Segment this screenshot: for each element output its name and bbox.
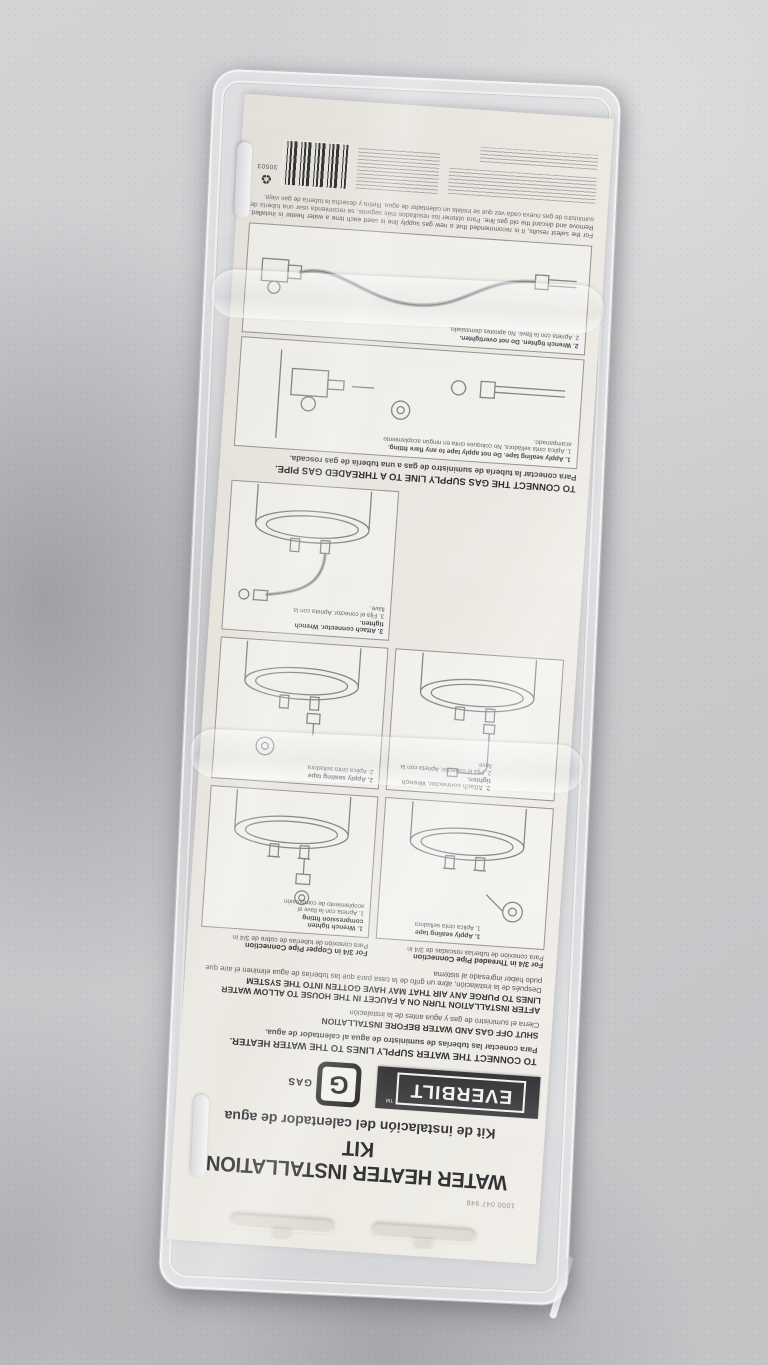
panel-gas-step1: 1. Apply sealing tape. Do not apply tape… bbox=[234, 336, 585, 469]
gas-badge-letter: G bbox=[315, 1061, 362, 1108]
panel-copper-step3: 3. Attach connector. Wrench tighten. 3. … bbox=[221, 480, 399, 641]
panel-copper-step2: 2. Apply sealing tape 2. Aplica cinta se… bbox=[211, 636, 389, 789]
distributor-address-lines bbox=[355, 147, 440, 195]
gas-badge-label: GAS bbox=[287, 1075, 312, 1088]
trademark-symbol: TM bbox=[386, 1097, 394, 1103]
everbilt-logo-bar: EVERBILT TM bbox=[375, 1066, 540, 1119]
insert-card: 1000 047 948 WATER HEATER INSTALLATION K… bbox=[167, 94, 614, 1265]
panel-threaded-step1: 1. Apply sealing tape 1. Aplica cinta se… bbox=[376, 797, 554, 950]
panel-threaded-step2: 2. Attach connector. Wrench tighten. 2. … bbox=[386, 648, 564, 801]
barcode-group: ♻ 30503 bbox=[252, 139, 348, 191]
panel-gas-step2: 2. Wrench tighten. Do not overtighten. 2… bbox=[242, 222, 593, 355]
panel-copper-step1: 1. Wrench tighten compression fitting 1.… bbox=[201, 785, 379, 938]
instruction-panels: 1. Apply sealing tape 1. Aplica cinta se… bbox=[201, 480, 575, 950]
everbilt-logo-box: EVERBILT bbox=[396, 1072, 526, 1113]
blister-package: 1000 047 948 WATER HEATER INSTALLATION K… bbox=[157, 67, 622, 1306]
everbilt-logo-text: EVERBILT bbox=[409, 1078, 513, 1107]
upc-barcode bbox=[281, 141, 348, 189]
recycle-icon: ♻ bbox=[260, 172, 273, 186]
hang-tab-slot bbox=[371, 1222, 476, 1244]
fine-print-lines bbox=[447, 168, 596, 204]
barcode-number: 30503 bbox=[257, 162, 278, 170]
panel-threaded-blank bbox=[396, 494, 574, 653]
legal-and-barcode-row: ♻ 30503 bbox=[252, 105, 601, 209]
hang-tab-slot bbox=[230, 1212, 335, 1234]
photo-scene: 1000 047 948 WATER HEATER INSTALLATION K… bbox=[0, 0, 768, 1365]
fine-print-lines bbox=[480, 147, 599, 170]
gas-badge: G GAS bbox=[286, 1059, 362, 1108]
